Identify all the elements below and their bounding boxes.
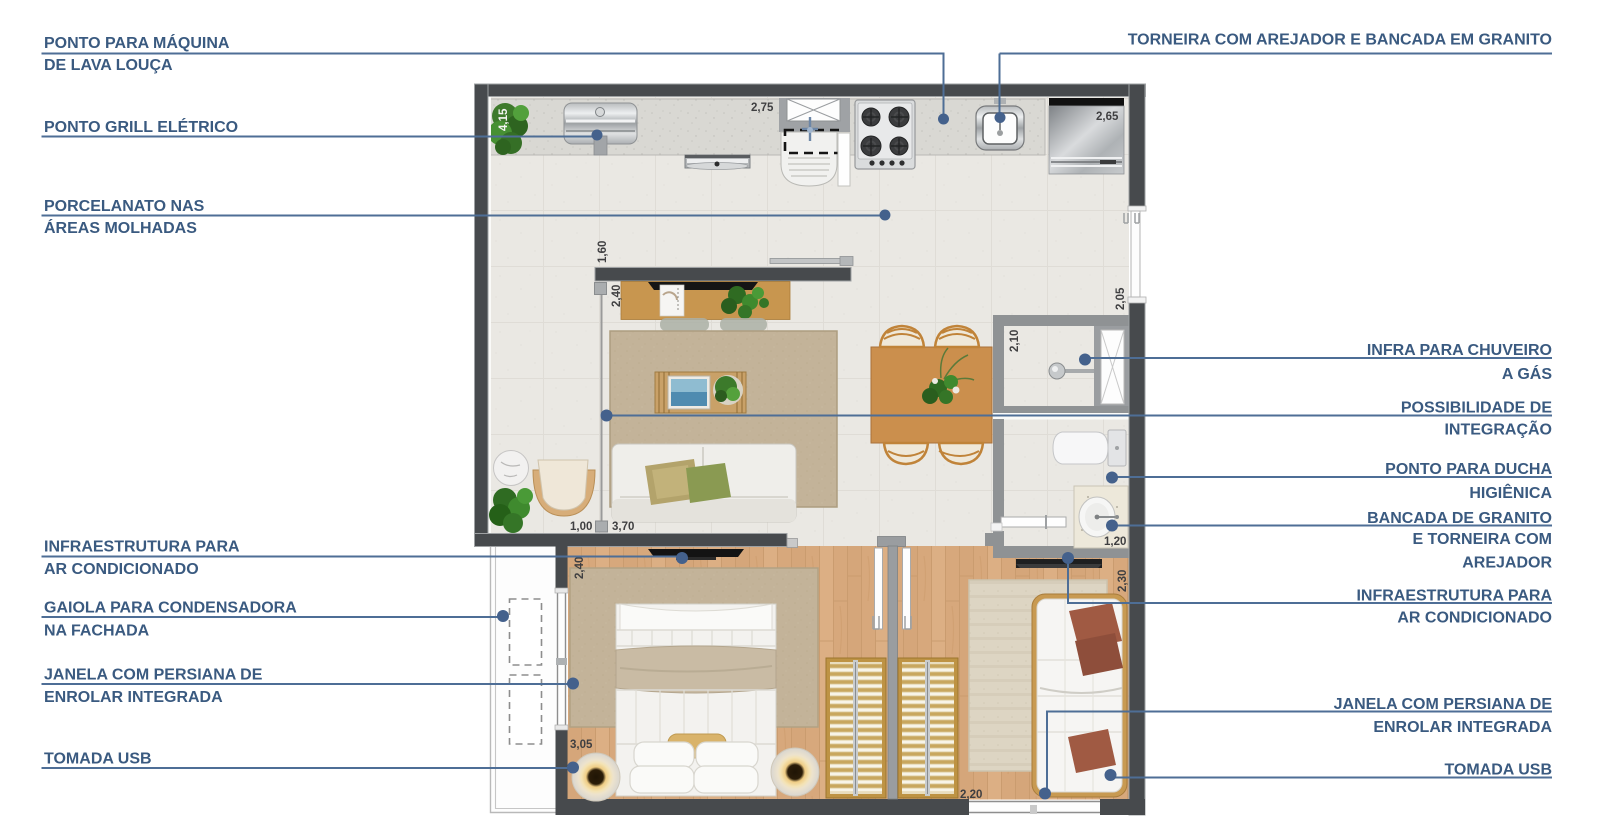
svg-text:INFRAESTRUTURA PARA: INFRAESTRUTURA PARA <box>44 539 240 556</box>
svg-text:2,05: 2,05 <box>1115 287 1127 310</box>
svg-text:PONTO PARA MÁQUINA: PONTO PARA MÁQUINA <box>44 33 230 52</box>
svg-text:2,30: 2,30 <box>1117 570 1129 592</box>
svg-text:POSSIBILIDADE DE: POSSIBILIDADE DE <box>1401 400 1552 417</box>
svg-text:AREJADOR: AREJADOR <box>1462 555 1552 572</box>
svg-text:2,65: 2,65 <box>1096 111 1119 123</box>
svg-text:2,10: 2,10 <box>1009 330 1021 352</box>
svg-text:PORCELANATO NAS: PORCELANATO NAS <box>44 198 205 215</box>
svg-text:1,20: 1,20 <box>1104 536 1126 548</box>
svg-text:1,60: 1,60 <box>597 241 609 263</box>
svg-text:AR CONDICIONADO: AR CONDICIONADO <box>1397 610 1552 627</box>
svg-text:NA FACHADA: NA FACHADA <box>44 623 150 640</box>
svg-text:TORNEIRA COM AREJADOR E BANCAD: TORNEIRA COM AREJADOR E BANCADA EM GRANI… <box>1128 32 1552 49</box>
svg-text:2,75: 2,75 <box>751 102 774 114</box>
svg-text:DE LAVA LOUÇA: DE LAVA LOUÇA <box>44 57 173 74</box>
svg-text:E TORNEIRA COM: E TORNEIRA COM <box>1412 531 1552 548</box>
svg-text:2,20: 2,20 <box>960 789 982 801</box>
svg-text:2,40: 2,40 <box>611 285 623 307</box>
svg-text:INFRAESTRUTURA PARA: INFRAESTRUTURA PARA <box>1356 588 1552 605</box>
svg-text:ÁREAS MOLHADAS: ÁREAS MOLHADAS <box>44 218 197 237</box>
svg-text:AR CONDICIONADO: AR CONDICIONADO <box>44 561 199 578</box>
svg-text:3,05: 3,05 <box>570 739 593 751</box>
svg-text:JANELA COM PERSIANA DE: JANELA COM PERSIANA DE <box>44 667 263 684</box>
svg-text:INTEGRAÇÃO: INTEGRAÇÃO <box>1444 419 1552 439</box>
svg-text:BANCADA DE GRANITO: BANCADA DE GRANITO <box>1367 510 1552 527</box>
svg-text:1,00: 1,00 <box>570 521 592 533</box>
svg-text:PONTO PARA DUCHA: PONTO PARA DUCHA <box>1385 461 1552 478</box>
svg-text:ENROLAR INTEGRADA: ENROLAR INTEGRADA <box>44 689 223 706</box>
svg-text:A GÁS: A GÁS <box>1502 364 1552 383</box>
svg-text:GAIOLA PARA CONDENSADORA: GAIOLA PARA CONDENSADORA <box>44 600 297 617</box>
svg-text:4,15: 4,15 <box>498 108 510 131</box>
svg-text:INFRA PARA CHUVEIRO: INFRA PARA CHUVEIRO <box>1367 342 1552 359</box>
svg-text:PONTO GRILL ELÉTRICO: PONTO GRILL ELÉTRICO <box>44 117 238 136</box>
svg-text:ENROLAR INTEGRADA: ENROLAR INTEGRADA <box>1373 719 1552 736</box>
svg-text:3,70: 3,70 <box>612 521 634 533</box>
svg-text:JANELA COM PERSIANA DE: JANELA COM PERSIANA DE <box>1334 696 1553 713</box>
svg-text:TOMADA USB: TOMADA USB <box>44 751 152 768</box>
svg-text:2,40: 2,40 <box>574 557 586 579</box>
svg-text:HIGIÊNICA: HIGIÊNICA <box>1469 483 1552 502</box>
svg-text:TOMADA USB: TOMADA USB <box>1444 762 1552 779</box>
